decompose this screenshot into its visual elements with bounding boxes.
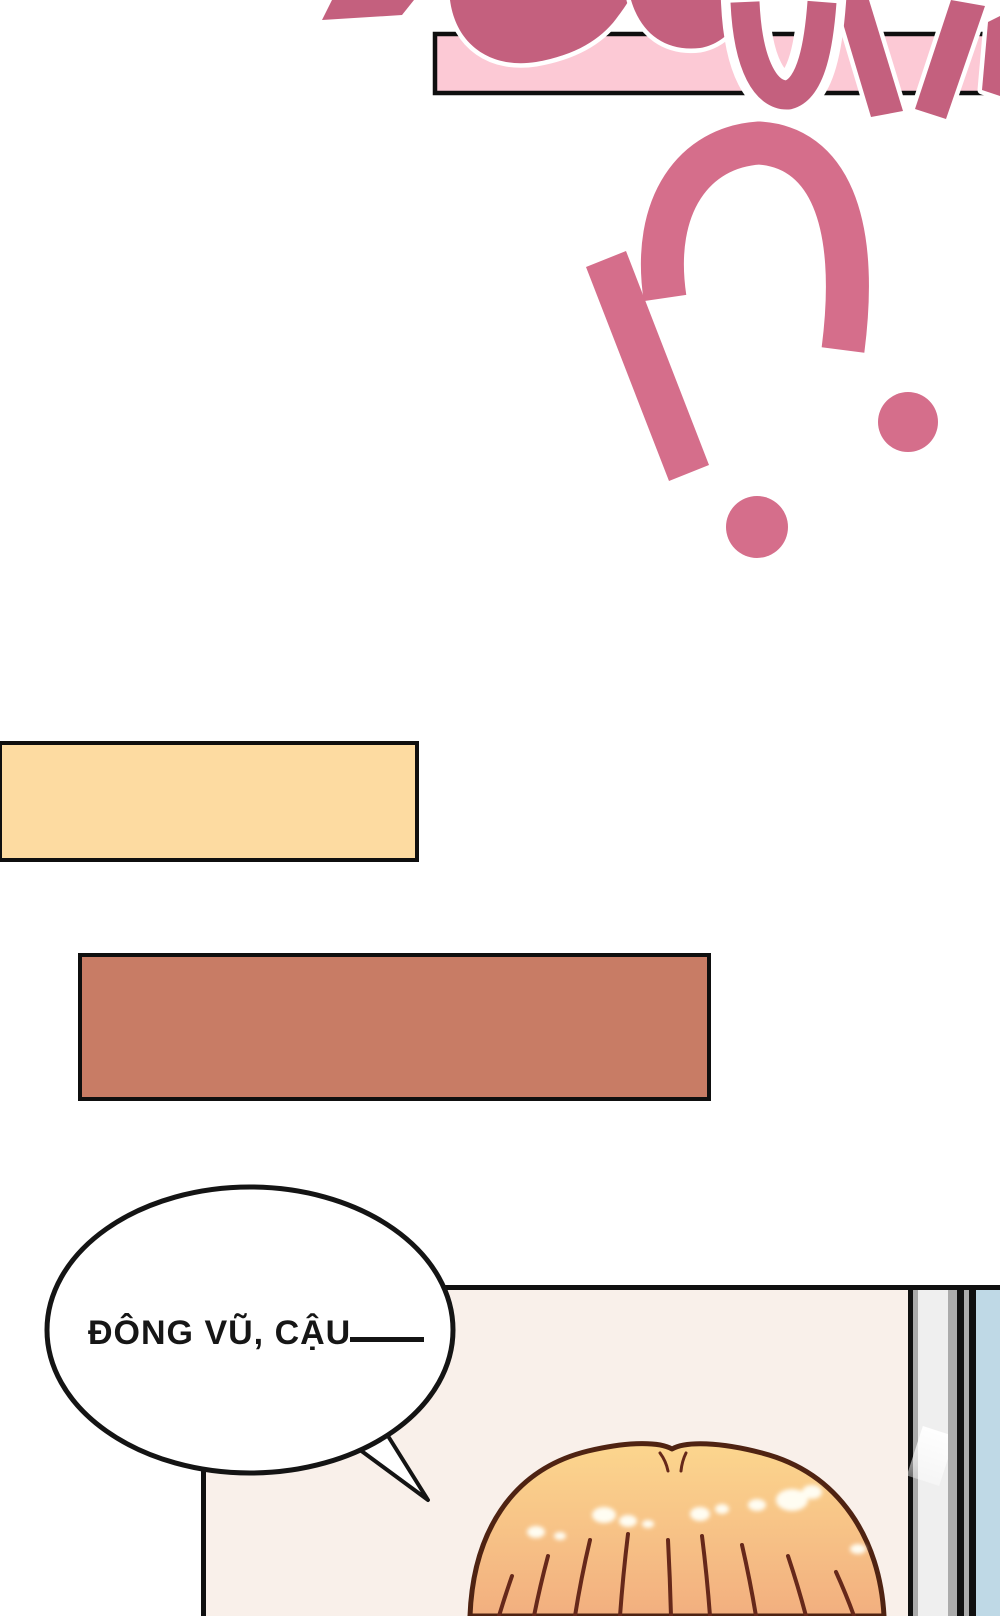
- speech-dash: [350, 1337, 424, 1342]
- door-edge-gray: [948, 1290, 957, 1616]
- speech-text: ĐÔNG VŨ, CẬU: [88, 1314, 351, 1353]
- character-head: [455, 1440, 895, 1616]
- caption-box-cream: [0, 741, 419, 862]
- comic-page: ĐÔNG VŨ, CẬU: [0, 0, 1000, 1616]
- exclamation-dot: [726, 496, 788, 558]
- wall-line: [969, 1290, 976, 1616]
- wall-blue: [976, 1290, 1000, 1616]
- door-jamb-line: [957, 1290, 964, 1616]
- question-dot: [878, 392, 938, 452]
- question-hook: [662, 143, 847, 350]
- interrobang-mark: [580, 115, 950, 565]
- caption-box-brown: [78, 953, 711, 1101]
